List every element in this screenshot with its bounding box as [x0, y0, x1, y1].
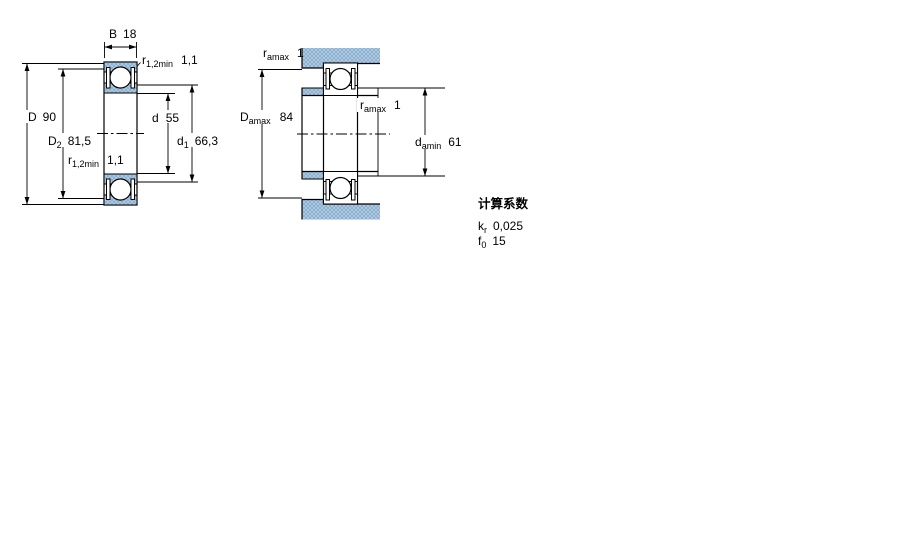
shield-bottom-right: [352, 180, 356, 201]
shield-top-left: [107, 68, 111, 89]
ball-top: [110, 67, 131, 88]
shield-bottom-left: [107, 179, 111, 200]
ball-bottom: [330, 178, 351, 199]
dim-label-d1: d166,3: [177, 134, 218, 150]
ball-top: [330, 69, 351, 90]
shield-top-right: [352, 69, 356, 90]
dim-label-D: D90: [28, 110, 56, 124]
shaft-shoulder-bottom: [302, 172, 324, 180]
shield-top-right: [131, 68, 135, 89]
shield-bottom-right: [131, 179, 135, 200]
technical-drawing-canvas: B18 r1,2min1,1 D90 D281,5 d55 d166,3 r1,…: [0, 0, 900, 560]
shield-bottom-left: [326, 180, 330, 201]
shield-top-left: [326, 69, 330, 90]
calculation-factors-title: 计算系数: [478, 196, 529, 211]
drawing-page: B18 r1,2min1,1 D90 D281,5 d55 d166,3 r1,…: [0, 0, 900, 560]
dim-label-d: d55: [152, 111, 179, 125]
dim-label-D2: D281,5: [48, 134, 91, 150]
ball-bottom: [110, 179, 131, 200]
dim-label-B: B18: [109, 27, 137, 41]
shaft-shoulder-top: [302, 88, 324, 96]
